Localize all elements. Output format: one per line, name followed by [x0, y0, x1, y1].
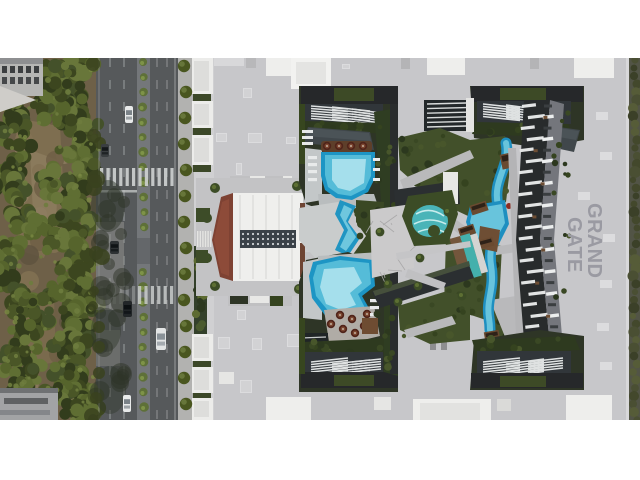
svg-text:GRAND: GRAND: [583, 203, 605, 278]
svg-text:GATE: GATE: [563, 217, 585, 273]
